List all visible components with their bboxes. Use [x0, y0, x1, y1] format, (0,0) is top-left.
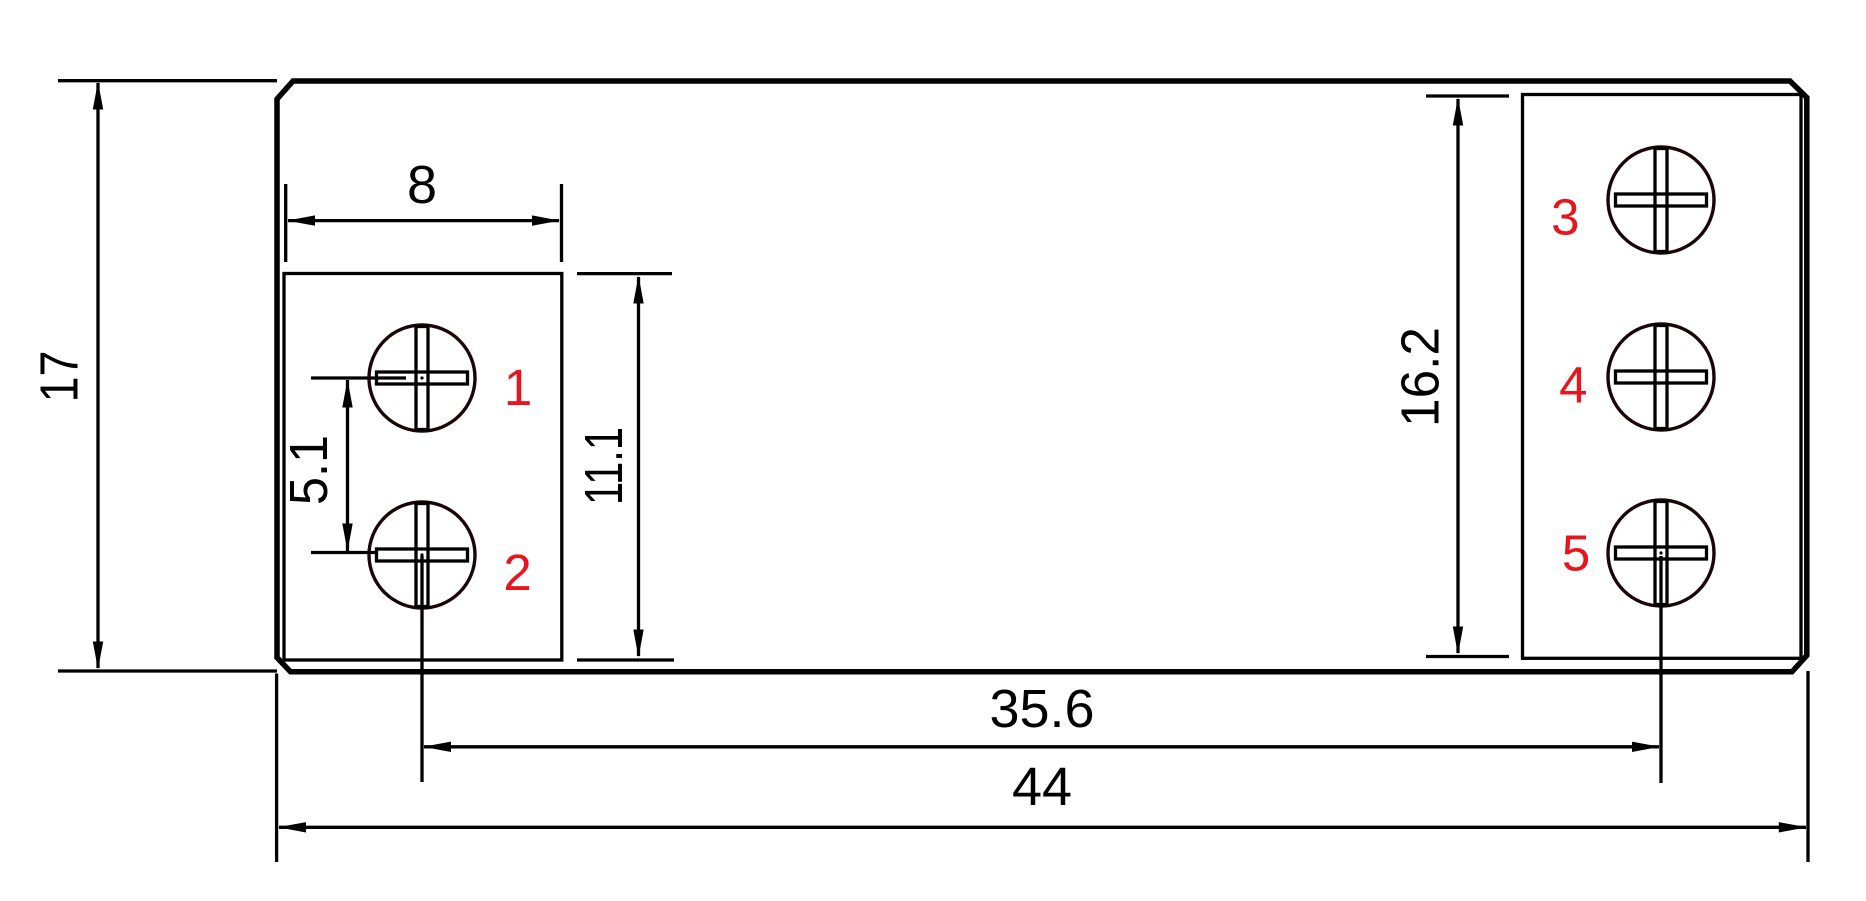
svg-text:3: 3	[1551, 189, 1579, 246]
svg-text:5.1: 5.1	[279, 435, 339, 505]
svg-text:4: 4	[1559, 357, 1587, 414]
svg-text:8: 8	[407, 155, 437, 215]
svg-text:2: 2	[503, 544, 531, 601]
svg-text:17: 17	[30, 351, 90, 403]
svg-text:11.1: 11.1	[574, 427, 634, 505]
svg-text:1: 1	[504, 359, 532, 416]
svg-text:16.2: 16.2	[1390, 327, 1450, 427]
svg-text:5: 5	[1562, 525, 1590, 582]
svg-text:44: 44	[1012, 757, 1072, 817]
svg-text:35.6: 35.6	[989, 679, 1094, 739]
